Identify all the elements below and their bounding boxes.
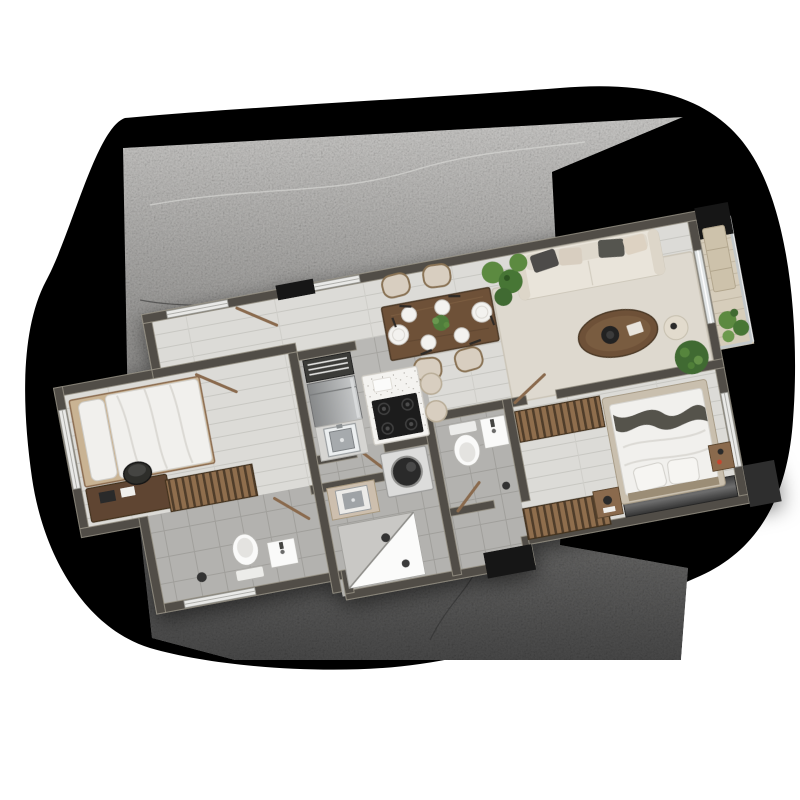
washing-machine	[380, 446, 433, 498]
screenshot-stage	[0, 0, 800, 800]
dining-chair	[422, 263, 452, 288]
washbasin	[480, 415, 510, 449]
side-table	[708, 442, 734, 472]
pillow	[667, 457, 700, 485]
refrigerator	[307, 376, 362, 428]
gas-cooktop	[371, 393, 424, 441]
kitchen-island	[362, 366, 430, 445]
small-sink	[267, 538, 299, 569]
floor-plan-scene	[0, 0, 800, 800]
bed-duvet	[105, 379, 213, 479]
double-bed	[602, 379, 726, 505]
corner-shower	[338, 512, 425, 588]
nightstand	[593, 487, 624, 518]
